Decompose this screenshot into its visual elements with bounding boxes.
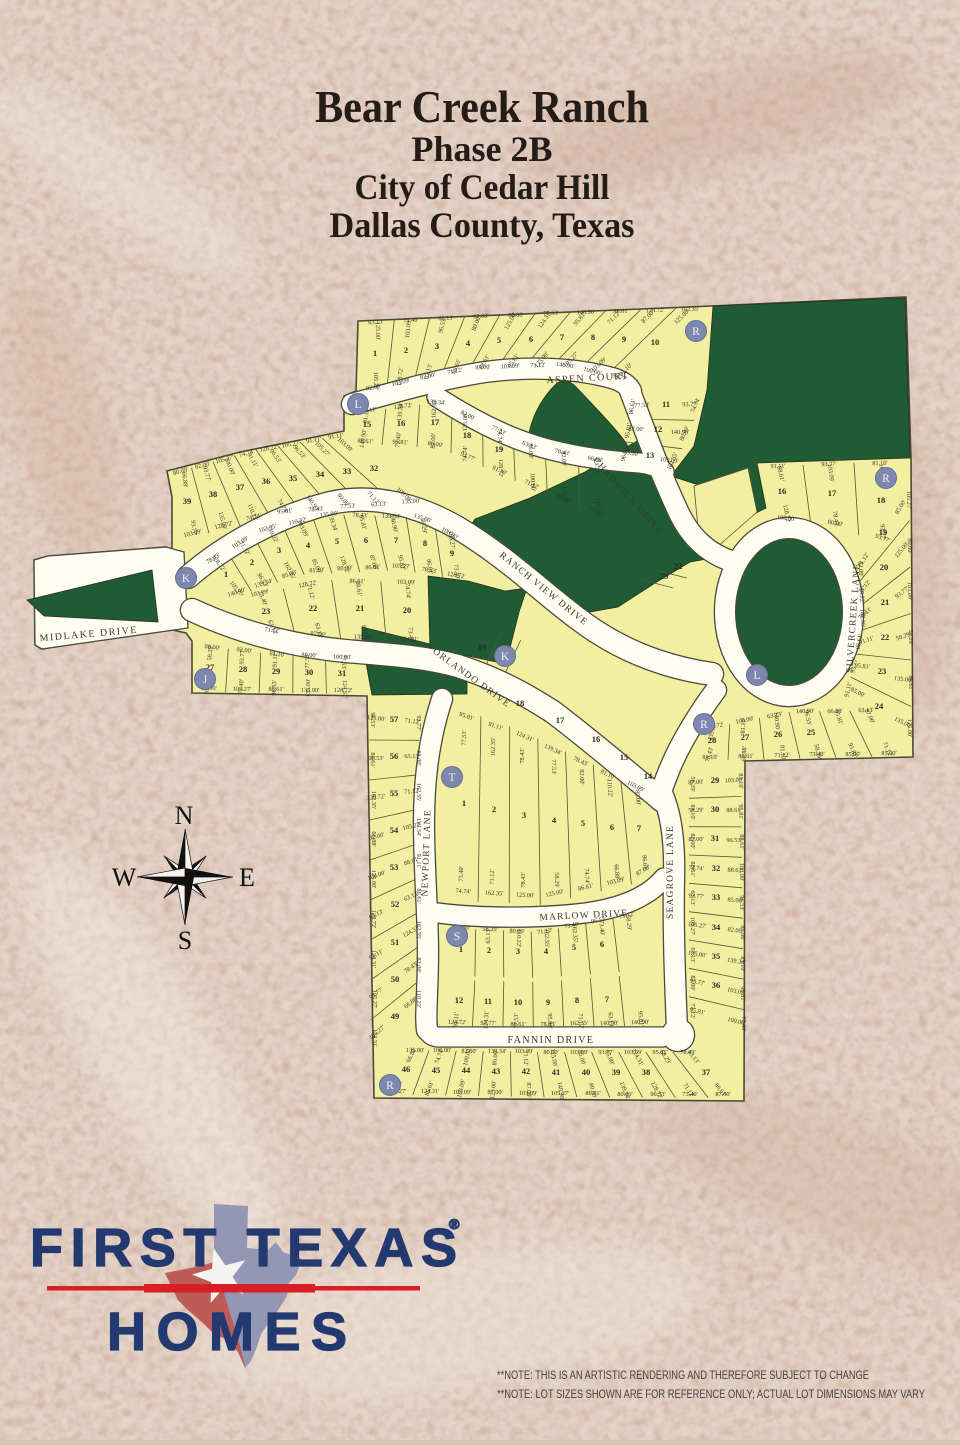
svg-text:31: 31 [338, 668, 347, 678]
svg-text:38: 38 [209, 489, 218, 499]
svg-text:39: 39 [183, 496, 192, 506]
svg-text:26: 26 [774, 729, 783, 739]
svg-text:23: 23 [878, 666, 887, 676]
svg-text:88.61': 88.61' [357, 438, 373, 446]
svg-text:140.90': 140.90' [577, 309, 596, 317]
svg-text:128.72': 128.72' [646, 307, 665, 315]
svg-text:46: 46 [402, 1064, 411, 1074]
svg-text:162.35': 162.35' [485, 890, 504, 898]
svg-text:80.00': 80.00' [301, 652, 317, 660]
svg-text:85.00': 85.00' [475, 364, 491, 372]
svg-text:34: 34 [316, 469, 325, 479]
svg-text:125.00': 125.00' [516, 892, 535, 900]
svg-text:15: 15 [363, 419, 372, 429]
svg-text:124.31': 124.31' [371, 1029, 378, 1047]
svg-text:135.00': 135.00' [401, 497, 420, 505]
svg-text:54: 54 [390, 825, 399, 835]
svg-text:105.27': 105.27' [905, 491, 912, 510]
svg-text:43: 43 [492, 1066, 501, 1076]
svg-text:City of Cedar Hill: City of Cedar Hill [355, 167, 610, 207]
svg-text:85.00': 85.00' [845, 751, 860, 758]
svg-text:88.61': 88.61' [510, 1021, 525, 1028]
svg-text:2: 2 [492, 804, 496, 814]
svg-text:103.09': 103.09' [397, 579, 416, 587]
svg-text:124.31': 124.31' [370, 950, 377, 968]
svg-text:91.11': 91.11' [770, 463, 785, 471]
svg-text:140.90': 140.90' [631, 1019, 650, 1026]
svg-text:®: ® [449, 1216, 460, 1232]
svg-text:73.40': 73.40' [809, 751, 824, 758]
svg-text:R: R [882, 473, 890, 485]
svg-text:124.31': 124.31' [421, 1088, 440, 1095]
svg-text:19: 19 [495, 444, 504, 454]
svg-text:78.43': 78.43' [352, 512, 368, 520]
svg-text:18: 18 [877, 495, 886, 505]
svg-text:63.13': 63.13' [858, 707, 873, 714]
svg-text:162.35': 162.35' [570, 1020, 589, 1027]
svg-text:86.61': 86.61' [365, 564, 381, 572]
svg-text:103.09': 103.09' [501, 363, 520, 371]
svg-text:10: 10 [514, 997, 523, 1007]
svg-text:L: L [753, 670, 760, 682]
svg-text:27: 27 [741, 732, 750, 742]
svg-text:95.81': 95.81' [652, 1049, 667, 1056]
svg-text:50: 50 [391, 974, 400, 984]
svg-text:82.00': 82.00' [415, 957, 422, 972]
svg-text:11: 11 [662, 399, 670, 409]
svg-text:100.00': 100.00' [333, 654, 352, 662]
svg-text:128.72': 128.72' [448, 1019, 467, 1026]
svg-text:49: 49 [391, 1011, 400, 1021]
svg-text:8: 8 [591, 332, 595, 342]
svg-text:1: 1 [462, 798, 466, 808]
svg-text:103.09': 103.09' [570, 1049, 588, 1056]
svg-text:6: 6 [600, 939, 604, 949]
svg-text:9: 9 [546, 997, 550, 1007]
svg-text:63.13': 63.13' [368, 319, 384, 327]
svg-text:E: E [239, 863, 255, 892]
svg-text:110.22': 110.22' [605, 779, 613, 798]
svg-text:85.00': 85.00' [739, 925, 746, 940]
svg-text:73.40': 73.40' [740, 1016, 747, 1031]
svg-text:82.00': 82.00' [689, 975, 696, 990]
svg-text:63.13': 63.13' [438, 315, 454, 323]
svg-text:95.81': 95.81' [392, 439, 408, 447]
svg-text:55: 55 [390, 788, 399, 798]
svg-text:81.10': 81.10' [702, 754, 717, 761]
svg-text:18: 18 [463, 430, 472, 440]
svg-text:93.77': 93.77' [821, 461, 837, 469]
svg-text:87.00': 87.00' [715, 1091, 730, 1098]
svg-text:82.00': 82.00' [415, 750, 422, 765]
svg-text:32: 32 [712, 863, 721, 873]
svg-text:K: K [182, 573, 191, 585]
svg-text:28: 28 [239, 664, 248, 674]
svg-text:162.35': 162.35' [681, 306, 700, 314]
svg-text:5: 5 [572, 942, 576, 952]
svg-text:125.00': 125.00' [906, 719, 913, 737]
svg-text:81.10': 81.10' [737, 773, 744, 788]
svg-text:88.61': 88.61' [268, 686, 283, 693]
svg-text:103.09': 103.09' [906, 582, 913, 601]
svg-text:Bear Creek Ranch: Bear Creek Ranch [315, 82, 649, 132]
svg-text:18: 18 [516, 698, 525, 708]
svg-text:25: 25 [807, 727, 816, 737]
svg-text:81.10': 81.10' [689, 804, 696, 819]
svg-text:39: 39 [612, 1067, 621, 1077]
svg-text:10: 10 [651, 337, 660, 347]
svg-text:87.00': 87.00' [310, 630, 326, 638]
svg-text:6: 6 [610, 822, 614, 832]
svg-text:73.40': 73.40' [458, 866, 465, 881]
svg-text:86.61': 86.61' [349, 578, 365, 586]
svg-text:82.00': 82.00' [689, 833, 696, 848]
svg-text:9: 9 [450, 548, 454, 558]
svg-text:58.29': 58.29' [482, 926, 498, 934]
svg-text:71.12': 71.12' [774, 752, 789, 759]
svg-text:80.00': 80.00' [508, 312, 524, 320]
svg-text:19: 19 [478, 642, 487, 652]
svg-text:Phase 2B: Phase 2B [412, 129, 553, 169]
svg-text:81.10': 81.10' [309, 567, 325, 575]
svg-text:78.43': 78.43' [519, 748, 526, 763]
svg-text:80.00': 80.00' [617, 1091, 632, 1098]
svg-text:16: 16 [778, 486, 787, 496]
svg-text:73.40': 73.40' [682, 1091, 697, 1098]
svg-text:17: 17 [431, 417, 440, 427]
svg-text:34: 34 [712, 922, 721, 932]
svg-text:140.90': 140.90' [796, 708, 815, 715]
svg-text:103.09': 103.09' [519, 1090, 538, 1097]
svg-text:77.53': 77.53' [543, 310, 559, 318]
svg-text:139.34': 139.34' [488, 1048, 507, 1055]
svg-text:2: 2 [404, 345, 408, 355]
svg-text:88.61': 88.61' [613, 308, 629, 316]
svg-text:R: R [692, 326, 700, 338]
svg-text:J: J [203, 674, 208, 686]
svg-text:36: 36 [262, 476, 271, 486]
svg-text:21: 21 [881, 597, 890, 607]
svg-text:40: 40 [582, 1067, 591, 1077]
svg-text:86.61': 86.61' [585, 1090, 600, 1097]
svg-text:77.53': 77.53' [340, 502, 356, 510]
svg-text:128.72': 128.72' [334, 687, 353, 694]
svg-text:16: 16 [397, 418, 406, 428]
svg-text:80.00': 80.00' [337, 565, 353, 573]
svg-text:88.61': 88.61' [738, 834, 745, 849]
svg-text:37: 37 [702, 1067, 711, 1077]
svg-text:87.00': 87.00' [487, 1089, 502, 1096]
svg-text:**NOTE: THIS IS AN ARTISTIC RE: **NOTE: THIS IS AN ARTISTIC RENDERING AN… [497, 1368, 869, 1382]
svg-text:110.22': 110.22' [415, 990, 422, 1008]
svg-text:6: 6 [529, 334, 533, 344]
svg-text:139.34': 139.34' [427, 398, 446, 406]
svg-text:33: 33 [712, 892, 721, 902]
svg-text:139.34': 139.34' [415, 818, 422, 836]
svg-text:80.00': 80.00' [543, 1049, 558, 1056]
svg-text:5: 5 [497, 335, 501, 345]
svg-text:103.09': 103.09' [624, 1049, 642, 1056]
svg-text:3: 3 [277, 545, 281, 555]
svg-text:71.12': 71.12' [264, 626, 280, 634]
svg-text:103.09': 103.09' [515, 1048, 534, 1055]
svg-text:86.61': 86.61' [369, 752, 376, 767]
svg-text:105.27': 105.27' [551, 1090, 569, 1097]
svg-text:1: 1 [373, 348, 377, 358]
svg-text:35: 35 [712, 951, 721, 961]
svg-text:71.12': 71.12' [530, 362, 546, 370]
svg-text:12: 12 [654, 424, 663, 434]
svg-text:2: 2 [487, 945, 491, 955]
svg-text:78.43': 78.43' [540, 1021, 555, 1028]
svg-text:12: 12 [455, 995, 464, 1005]
svg-text:93.77': 93.77' [415, 715, 422, 730]
svg-text:93.77': 93.77' [480, 1020, 495, 1027]
svg-text:33: 33 [343, 466, 352, 476]
svg-text:96.53': 96.53' [369, 712, 376, 727]
svg-text:66.88': 66.88' [827, 708, 842, 715]
svg-text:73.40': 73.40' [403, 317, 419, 325]
svg-text:2: 2 [250, 557, 254, 567]
svg-text:15: 15 [620, 752, 629, 762]
svg-text:105.27': 105.27' [392, 562, 411, 570]
svg-text:82.00': 82.00' [461, 1048, 476, 1055]
svg-text:16: 16 [592, 734, 601, 744]
svg-text:87.00': 87.00' [473, 313, 489, 321]
svg-text:58.29': 58.29' [907, 629, 914, 644]
svg-text:L: L [354, 399, 361, 411]
svg-text:135.00': 135.00' [301, 687, 320, 694]
svg-text:8: 8 [575, 995, 579, 1005]
svg-text:38: 38 [642, 1067, 651, 1077]
svg-text:29: 29 [711, 775, 720, 785]
svg-text:37: 37 [236, 482, 245, 492]
svg-text:140.90': 140.90' [600, 1020, 619, 1027]
svg-text:105.27': 105.27' [233, 686, 252, 693]
svg-text:22: 22 [674, 561, 683, 571]
svg-text:FANNIN DRIVE: FANNIN DRIVE [508, 1035, 595, 1046]
svg-text:**NOTE: LOT SIZES SHOWN ARE FO: **NOTE: LOT SIZES SHOWN ARE FOR REFERENC… [497, 1387, 925, 1401]
svg-text:105.27': 105.27' [689, 917, 696, 935]
svg-text:77.53': 77.53' [550, 759, 557, 774]
svg-text:82.00': 82.00' [857, 561, 865, 577]
svg-text:128.72': 128.72' [370, 910, 377, 928]
svg-text:88.61': 88.61' [689, 861, 696, 876]
svg-text:1: 1 [224, 569, 228, 579]
svg-text:35: 35 [289, 473, 298, 483]
svg-text:57: 57 [390, 714, 399, 724]
svg-text:S: S [178, 926, 192, 955]
svg-text:135.00': 135.00' [354, 634, 373, 642]
svg-text:22: 22 [881, 632, 890, 642]
svg-text:6: 6 [364, 535, 368, 545]
svg-text:29: 29 [272, 666, 281, 676]
svg-text:71.12': 71.12' [689, 1003, 696, 1018]
svg-text:36: 36 [712, 980, 721, 990]
svg-text:162.35': 162.35' [415, 783, 422, 801]
svg-text:17: 17 [828, 488, 837, 498]
svg-text:5: 5 [581, 818, 585, 828]
svg-text:17: 17 [556, 715, 565, 725]
svg-text:86.61': 86.61' [907, 675, 914, 690]
svg-text:95.81': 95.81' [737, 804, 744, 819]
svg-text:K: K [501, 651, 510, 663]
svg-text:42: 42 [522, 1066, 531, 1076]
svg-text:110.22': 110.22' [858, 585, 866, 603]
svg-text:74.74': 74.74' [583, 868, 591, 884]
svg-text:95.81': 95.81' [739, 986, 746, 1001]
svg-text:96.53': 96.53' [738, 895, 745, 910]
svg-text:Dallas County, Texas: Dallas County, Texas [330, 205, 635, 245]
svg-text:56: 56 [390, 751, 399, 761]
svg-text:13: 13 [646, 450, 655, 460]
svg-text:HOMES: HOMES [107, 1302, 347, 1362]
svg-text:32: 32 [370, 463, 379, 473]
svg-text:100.00': 100.00' [738, 863, 745, 882]
svg-text:30: 30 [711, 804, 720, 814]
svg-text:14: 14 [644, 771, 653, 781]
svg-text:88.61': 88.61' [738, 753, 753, 760]
svg-text:77.53': 77.53' [461, 730, 468, 745]
svg-text:3: 3 [522, 810, 526, 820]
svg-text:71.12': 71.12' [489, 869, 496, 884]
svg-text:3: 3 [435, 341, 439, 351]
svg-text:44: 44 [462, 1065, 471, 1075]
svg-text:86.61': 86.61' [415, 888, 422, 903]
svg-text:SEAGROVE LANE: SEAGROVE LANE [666, 825, 676, 919]
svg-text:63.13': 63.13' [371, 500, 387, 508]
svg-text:125.00': 125.00' [370, 870, 377, 888]
svg-text:52: 52 [391, 899, 400, 909]
svg-text:96.53': 96.53' [650, 1091, 665, 1098]
svg-text:W: W [112, 863, 137, 892]
svg-text:81.10': 81.10' [872, 460, 888, 468]
svg-text:N: N [175, 801, 194, 830]
svg-text:8: 8 [423, 538, 427, 548]
svg-text:74.74': 74.74' [455, 888, 471, 896]
svg-text:80.00': 80.00' [906, 538, 913, 553]
svg-text:30: 30 [305, 667, 314, 677]
svg-text:85.00': 85.00' [881, 750, 896, 757]
svg-text:53: 53 [390, 862, 399, 872]
svg-text:19: 19 [879, 527, 888, 537]
svg-text:91.11': 91.11' [415, 853, 422, 868]
svg-text:93.77': 93.77' [598, 1049, 613, 1056]
svg-text:162.35': 162.35' [859, 609, 867, 628]
svg-text:23: 23 [660, 571, 669, 581]
svg-text:80.00': 80.00' [509, 928, 525, 936]
svg-text:58.29': 58.29' [689, 776, 696, 791]
svg-text:24: 24 [875, 701, 884, 711]
svg-text:31: 31 [711, 833, 720, 843]
svg-text:103.09': 103.09' [453, 1089, 472, 1096]
svg-text:45: 45 [432, 1065, 441, 1075]
svg-text:21: 21 [356, 603, 365, 613]
svg-text:S: S [454, 931, 460, 943]
svg-text:81.10': 81.10' [739, 956, 746, 971]
svg-text:28: 28 [708, 735, 717, 745]
svg-text:51: 51 [391, 937, 400, 947]
svg-text:9: 9 [622, 334, 626, 344]
svg-text:162.35': 162.35' [490, 738, 497, 757]
svg-text:162.35': 162.35' [370, 791, 377, 809]
svg-text:R: R [700, 719, 708, 731]
svg-text:20: 20 [880, 562, 889, 572]
svg-text:66.88': 66.88' [370, 831, 377, 846]
svg-text:78.43': 78.43' [680, 1049, 695, 1056]
svg-text:105.27': 105.27' [371, 990, 378, 1008]
svg-text:T: T [448, 772, 455, 784]
svg-text:3: 3 [516, 946, 520, 956]
svg-text:41: 41 [552, 1067, 561, 1077]
svg-text:135.00': 135.00' [406, 1047, 425, 1054]
svg-text:124.31': 124.31' [400, 636, 419, 644]
svg-text:R: R [386, 1080, 394, 1092]
svg-text:5: 5 [335, 536, 339, 546]
svg-text:58.29': 58.29' [553, 872, 560, 887]
svg-text:63.13': 63.13' [689, 947, 696, 962]
svg-text:22: 22 [309, 603, 318, 613]
svg-text:11: 11 [484, 996, 492, 1006]
svg-text:100.00': 100.00' [433, 1047, 452, 1054]
svg-text:20: 20 [403, 605, 412, 615]
svg-text:139.34': 139.34' [382, 513, 401, 521]
svg-text:63.13': 63.13' [689, 890, 696, 905]
svg-text:78.43': 78.43' [520, 872, 527, 887]
svg-text:162.35': 162.35' [415, 921, 422, 939]
svg-text:82.00': 82.00' [578, 769, 586, 785]
svg-text:23: 23 [262, 606, 271, 616]
